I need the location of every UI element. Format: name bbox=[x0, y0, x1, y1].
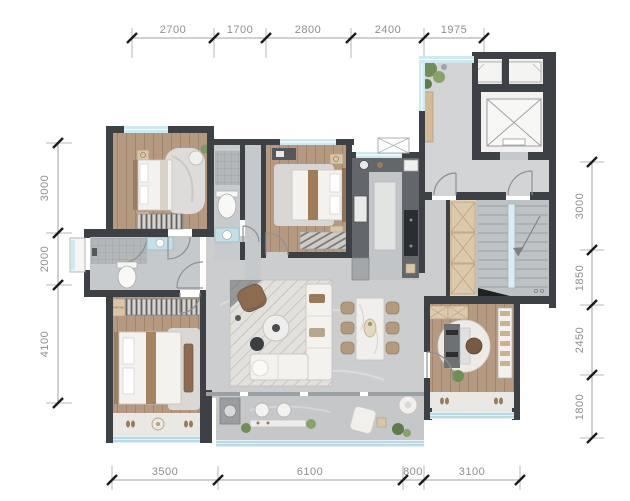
floor-lamp bbox=[235, 315, 241, 321]
dim-top-3: 2800 bbox=[295, 24, 321, 36]
dim-right-1: 3000 bbox=[574, 193, 586, 219]
floor-plan-page: 2700 1700 2800 2400 1975 3000 2000 4100 … bbox=[0, 0, 630, 501]
dim-bottom-3: 800 bbox=[403, 466, 423, 478]
dim-top-1: 2700 bbox=[160, 24, 186, 36]
toilet bbox=[118, 266, 136, 288]
balcony-slider bbox=[206, 392, 424, 396]
sofa-pillow bbox=[309, 328, 325, 337]
toilet bbox=[218, 194, 236, 218]
floor-plan-svg: 2700 1700 2800 2400 1975 3000 2000 4100 … bbox=[0, 0, 630, 501]
dimension-chain-top: 2700 1700 2800 2400 1975 bbox=[127, 24, 489, 58]
balcony-chair bbox=[277, 403, 291, 417]
desk-chair bbox=[466, 338, 482, 354]
elevator-door-sill bbox=[500, 152, 528, 160]
oven bbox=[404, 210, 418, 256]
window bbox=[124, 126, 168, 133]
balcony-floor bbox=[216, 396, 424, 442]
window bbox=[280, 139, 336, 145]
bath-left-floor bbox=[90, 236, 200, 290]
window-band bbox=[113, 436, 200, 443]
hall-closet bbox=[450, 200, 476, 296]
wardrobe bbox=[118, 299, 200, 315]
stair-rail bbox=[508, 204, 515, 288]
dim-left-3: 4100 bbox=[39, 331, 51, 357]
dim-bottom-2: 6100 bbox=[297, 466, 323, 478]
island bbox=[374, 182, 396, 250]
side-table bbox=[250, 337, 264, 351]
bench bbox=[184, 344, 193, 392]
bed-headboard bbox=[133, 160, 138, 210]
dimension-chain-right: 3000 1850 2450 1800 bbox=[574, 157, 604, 443]
dim-right-4: 1800 bbox=[574, 394, 586, 420]
plant bbox=[306, 419, 316, 429]
fridge bbox=[352, 258, 369, 280]
bay-window bbox=[70, 238, 85, 272]
bed-throw bbox=[160, 160, 168, 210]
dim-top-5: 1975 bbox=[441, 24, 467, 36]
kitchen-sink bbox=[354, 196, 367, 222]
dim-top-4: 2400 bbox=[375, 24, 401, 36]
dining-set bbox=[341, 298, 399, 360]
shower-1 bbox=[215, 151, 240, 185]
plant bbox=[403, 429, 411, 437]
balcony-chair bbox=[255, 403, 269, 417]
dim-right-3: 2450 bbox=[574, 327, 586, 353]
plant bbox=[392, 423, 404, 435]
elevator bbox=[481, 92, 547, 152]
cube-stool bbox=[377, 418, 386, 427]
shower-2 bbox=[91, 238, 147, 264]
centerpiece bbox=[364, 319, 376, 337]
nightstand bbox=[137, 150, 149, 160]
nightstand bbox=[330, 154, 343, 164]
bed-throw bbox=[308, 170, 318, 220]
living-room-furniture bbox=[230, 280, 332, 386]
dimension-chain-bottom: 3500 6100 800 3100 bbox=[107, 466, 525, 490]
sofa-pillow bbox=[309, 294, 325, 303]
window-band bbox=[430, 412, 514, 419]
plant bbox=[241, 423, 251, 433]
dim-left-1: 3000 bbox=[39, 175, 51, 201]
window-band bbox=[216, 440, 424, 447]
dim-right-2: 1850 bbox=[574, 265, 586, 291]
dimension-chain-left: 3000 2000 4100 bbox=[39, 138, 72, 408]
bed-throw bbox=[146, 332, 156, 404]
dresser bbox=[137, 214, 183, 229]
plant bbox=[433, 71, 445, 83]
dim-left-2: 2000 bbox=[39, 246, 51, 272]
light-well bbox=[378, 138, 409, 153]
bed-headboard bbox=[114, 332, 119, 404]
dim-bottom-1: 3500 bbox=[152, 466, 178, 478]
chair bbox=[189, 151, 203, 165]
bed-headboard bbox=[342, 168, 346, 222]
plant bbox=[452, 370, 464, 382]
dim-top-2: 1700 bbox=[227, 24, 253, 36]
rug-striped bbox=[300, 232, 346, 249]
dim-bottom-4: 3100 bbox=[459, 466, 485, 478]
